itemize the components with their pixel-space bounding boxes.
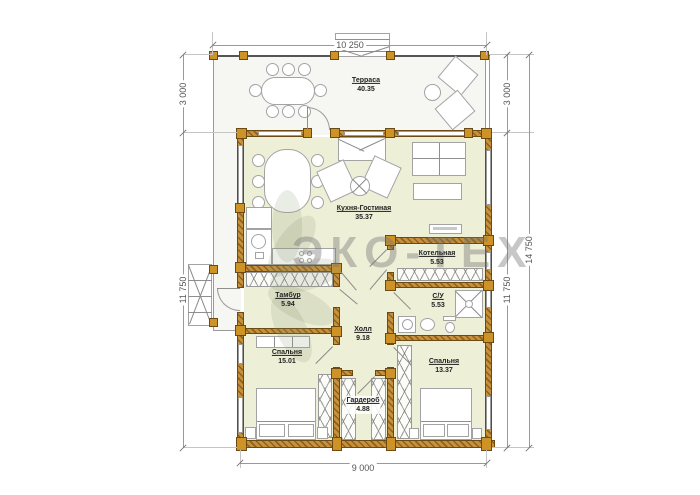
room-label-terrace: Терраса 40.35: [352, 76, 380, 94]
wall-post: [235, 325, 246, 336]
shower-drain: [465, 300, 473, 308]
window-right-4: [486, 396, 491, 430]
terrace-chair: [266, 105, 279, 118]
room-area: 5.53: [431, 301, 445, 310]
terrace-chair: [249, 84, 262, 97]
wall-post: [385, 280, 396, 291]
room-area: 35.37: [337, 213, 391, 222]
room-name: Холл: [354, 325, 372, 334]
entry-door-leaf: [217, 288, 240, 289]
dining-chair: [311, 154, 324, 167]
dim-bottom: 9 000: [350, 463, 377, 473]
terrace-glazing: [485, 56, 490, 132]
wall-post: [330, 128, 340, 138]
extension-line: [492, 132, 534, 133]
terrace-post: [480, 51, 489, 60]
wall-wc-top: [394, 282, 485, 288]
wall-post: [331, 368, 342, 379]
terrace-post: [239, 51, 248, 60]
bed-1-pillow: [259, 424, 285, 437]
corner-post: [236, 437, 247, 451]
wall-post: [483, 332, 494, 343]
room-label-wardrobe: Гардероб 4.88: [345, 396, 380, 414]
room-area: 5.94: [275, 300, 300, 309]
watermark-text: ЭКО-ТЕХ: [292, 228, 534, 278]
porch-post: [209, 265, 218, 274]
bed-1-line: [257, 421, 315, 422]
terrace-post: [386, 51, 395, 60]
room-label-boiler: Котельная 5.53: [419, 249, 456, 267]
terrace-chair: [298, 63, 311, 76]
wall-wc-bottom: [394, 335, 485, 341]
extension-line: [183, 132, 237, 133]
wall-post: [386, 437, 396, 451]
toilet-bowl: [445, 322, 455, 333]
terrace-chair: [282, 105, 295, 118]
wall-post: [331, 326, 342, 337]
window-left-1: [238, 145, 243, 205]
terrace-post: [209, 51, 218, 60]
porch-post: [209, 318, 218, 327]
corner-post: [236, 128, 247, 139]
wall-post: [464, 128, 473, 138]
fridge: [246, 207, 272, 229]
dresser-line: [274, 337, 275, 347]
terrace-chair: [266, 63, 279, 76]
corner-post: [481, 128, 492, 139]
room-area: 13.37: [429, 366, 459, 375]
entry-step: [188, 280, 212, 281]
desk-line: [439, 143, 440, 175]
room-name: Спальня: [429, 357, 459, 366]
window-top-1: [258, 131, 302, 136]
wall-post: [385, 333, 396, 344]
wall-post: [235, 262, 246, 273]
bed-2-pillow: [423, 424, 445, 437]
terrace-table: [261, 77, 315, 105]
room-label-hall: Холл 9.18: [354, 325, 372, 343]
dim-tick: [483, 41, 490, 48]
wall-bottom: [237, 440, 495, 448]
extension-line: [486, 450, 487, 468]
room-label-living: Кухня-Гостиная 35.37: [337, 204, 391, 222]
wall-post: [332, 437, 342, 451]
room-name: С/У: [431, 292, 445, 301]
room-area: 5.53: [419, 258, 456, 267]
dim-right-lower: 11 750: [502, 275, 512, 306]
dim-tick: [179, 444, 186, 451]
dim-tick: [503, 444, 510, 451]
nightstand: [317, 427, 328, 439]
room-name: Спальня: [272, 348, 302, 357]
room-area: 4.88: [346, 405, 379, 414]
dining-chair: [252, 175, 265, 188]
extension-line: [183, 447, 237, 448]
floor-plan: ЭКО-ТЕХ Терраса 40.35 Кухня-Гостиная 35.…: [0, 0, 700, 495]
terrace-chair: [314, 84, 327, 97]
wall-post: [235, 203, 245, 213]
sideboard: [413, 183, 462, 200]
room-label-bedroom1: Спальня 15.01: [272, 348, 302, 366]
dining-chair: [252, 154, 265, 167]
dim-top: 10 250: [334, 40, 366, 50]
room-label-bedroom2: Спальня 13.37: [429, 357, 459, 375]
window-top-3: [398, 131, 466, 136]
toilet-tank: [443, 316, 456, 321]
room-area: 9.18: [354, 334, 372, 343]
window-left-2: [238, 344, 243, 364]
bed-2-line: [421, 421, 471, 422]
room-name: Гардероб: [346, 396, 379, 405]
bed-2-pillow: [447, 424, 469, 437]
corner-post: [481, 437, 492, 451]
room-area: 40.35: [352, 85, 380, 94]
wall-post: [385, 368, 396, 379]
extension-line: [183, 54, 213, 55]
dim-right-upper: 3 000: [502, 81, 512, 108]
extension-line: [240, 450, 241, 468]
terrace-side-table: [424, 84, 441, 101]
kitchen-faucet: [255, 252, 264, 259]
washing-machine-door: [402, 319, 413, 330]
window-right-3: [486, 288, 491, 308]
dim-left-upper: 3 000: [178, 81, 188, 108]
room-label-tambour: Тамбур 5.94: [275, 291, 300, 309]
terrace-chair: [282, 63, 295, 76]
window-top-2: [344, 131, 384, 136]
window-right-1: [486, 150, 491, 205]
stair-step: [335, 51, 390, 52]
dim-line-left: [183, 55, 184, 448]
dining-chair: [311, 196, 324, 209]
dim-tick: [483, 459, 490, 466]
wall-post: [385, 128, 395, 138]
terrace-post: [330, 51, 339, 60]
room-area: 15.01: [272, 357, 302, 366]
wall-post: [483, 280, 494, 291]
room-name: Терраса: [352, 76, 380, 85]
nightstand: [409, 428, 419, 439]
room-name: Тамбур: [275, 291, 300, 300]
room-label-wc: С/У 5.53: [431, 292, 445, 310]
bathroom-sink: [420, 318, 435, 331]
bed-1-pillow: [288, 424, 314, 437]
room-name: Кухня-Гостиная: [337, 204, 391, 213]
dim-tick: [525, 444, 532, 451]
dim-left-lower: 11 750: [178, 275, 188, 306]
window-left-3: [238, 397, 243, 433]
terrace-door-leaf: [307, 107, 308, 130]
entry-step: [188, 312, 212, 313]
kitchen-sink: [251, 234, 266, 249]
room-name: Котельная: [419, 249, 456, 258]
